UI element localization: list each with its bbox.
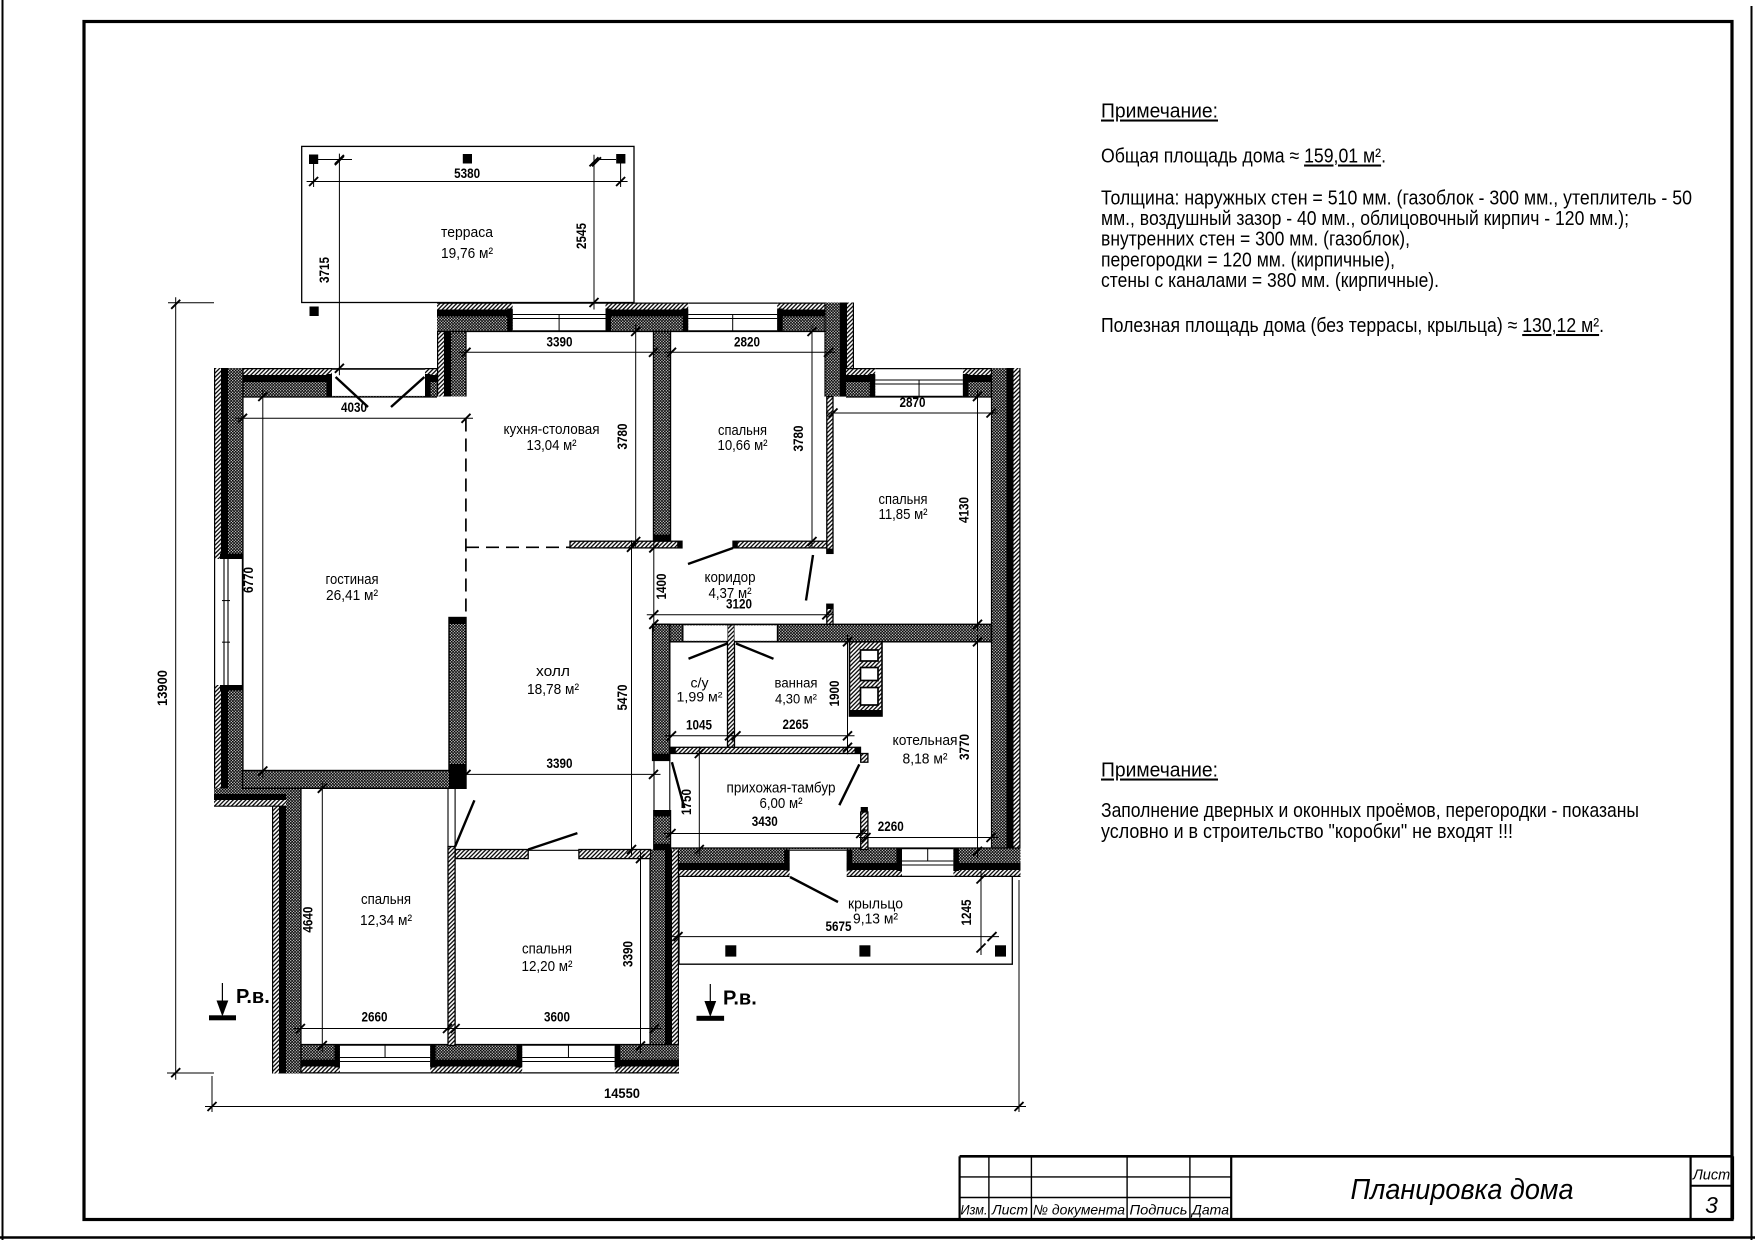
svg-text:котельная: котельная: [893, 732, 958, 749]
svg-text:19,76 м²: 19,76 м²: [441, 245, 493, 262]
svg-text:2265: 2265: [783, 717, 809, 732]
svg-text:4640: 4640: [301, 907, 316, 933]
svg-text:3390: 3390: [547, 756, 573, 771]
svg-text:гостиная: гостиная: [326, 571, 379, 588]
svg-text:1750: 1750: [679, 789, 694, 815]
svg-text:Р.в.: Р.в.: [723, 988, 757, 1010]
svg-text:прихожая-тамбур: прихожая-тамбур: [727, 780, 836, 797]
svg-text:внутренних стен = 300 мм. (газ: внутренних стен = 300 мм. (газоблок),: [1101, 228, 1410, 251]
svg-text:Толщина: наружных стен = 510 м: Толщина: наружных стен = 510 мм. (газобл…: [1101, 187, 1692, 210]
svg-text:4130: 4130: [957, 497, 972, 523]
svg-text:Общая площадь дома ≈ 159,01 м²: Общая площадь дома ≈ 159,01 м².: [1101, 145, 1386, 168]
svg-text:стены с каналами = 380 мм. (ки: стены с каналами = 380 мм. (кирпичные).: [1101, 269, 1439, 292]
svg-text:кухня-столовая: кухня-столовая: [504, 421, 600, 438]
svg-text:№ документа: № документа: [1033, 1202, 1125, 1218]
svg-text:коридор: коридор: [705, 569, 756, 586]
svg-text:6,00 м²: 6,00 м²: [760, 795, 803, 812]
svg-text:условно и в строительство "кор: условно и в строительство "коробки" не в…: [1101, 820, 1513, 843]
svg-text:6770: 6770: [241, 567, 256, 593]
svg-text:3715: 3715: [317, 257, 332, 283]
svg-text:Примечание:: Примечание:: [1101, 759, 1218, 782]
svg-text:3390: 3390: [547, 335, 573, 350]
svg-text:2660: 2660: [362, 1010, 388, 1025]
svg-text:Лист: Лист: [1692, 1168, 1730, 1184]
svg-text:3: 3: [1705, 1192, 1718, 1218]
svg-text:5470: 5470: [615, 685, 630, 711]
svg-text:9,13 м²: 9,13 м²: [853, 911, 898, 928]
svg-text:2260: 2260: [878, 819, 904, 834]
svg-text:1,99 м²: 1,99 м²: [677, 690, 724, 705]
svg-text:3600: 3600: [544, 1010, 570, 1025]
svg-text:перегородки = 120 мм. (кирпичн: перегородки = 120 мм. (кирпичные),: [1101, 248, 1395, 271]
svg-text:Примечание:: Примечание:: [1101, 100, 1218, 123]
svg-text:спальня: спальня: [361, 891, 411, 908]
svg-text:13900: 13900: [155, 670, 170, 706]
svg-text:Полезная площадь дома (без тер: Полезная площадь дома (без террасы, крыл…: [1101, 314, 1604, 337]
svg-text:Р.в.: Р.в.: [236, 986, 270, 1008]
svg-text:12,34 м²: 12,34 м²: [360, 912, 412, 929]
svg-text:терраса: терраса: [441, 224, 494, 241]
svg-text:Изм.: Изм.: [961, 1202, 988, 1218]
svg-text:2545: 2545: [574, 223, 589, 249]
svg-text:18,78 м²: 18,78 м²: [527, 681, 579, 698]
svg-text:11,85 м²: 11,85 м²: [879, 506, 928, 523]
svg-text:3780: 3780: [791, 426, 806, 452]
svg-text:4,30 м²: 4,30 м²: [775, 692, 817, 707]
svg-text:3430: 3430: [752, 814, 778, 829]
svg-text:1400: 1400: [654, 574, 669, 600]
svg-text:Заполнение дверных и оконных п: Заполнение дверных и оконных проёмов, пе…: [1101, 799, 1639, 822]
svg-text:Подпись: Подпись: [1130, 1202, 1188, 1218]
svg-text:5675: 5675: [826, 919, 852, 934]
svg-text:с/у: с/у: [691, 676, 709, 691]
svg-text:2820: 2820: [734, 335, 760, 350]
svg-text:3780: 3780: [615, 424, 630, 450]
svg-text:Лист: Лист: [991, 1202, 1028, 1218]
svg-text:1900: 1900: [827, 681, 842, 707]
svg-text:Дата: Дата: [1190, 1202, 1229, 1218]
svg-text:14550: 14550: [604, 1086, 640, 1101]
svg-text:1045: 1045: [686, 718, 712, 733]
svg-text:12,20 м²: 12,20 м²: [522, 958, 573, 975]
svg-text:2870: 2870: [900, 395, 926, 410]
svg-text:13,04 м²: 13,04 м²: [527, 437, 577, 454]
svg-text:3120: 3120: [726, 597, 752, 612]
svg-text:5380: 5380: [454, 166, 480, 181]
svg-text:3770: 3770: [957, 734, 972, 760]
svg-text:4030: 4030: [341, 400, 367, 415]
svg-text:8,18 м²: 8,18 м²: [903, 751, 948, 768]
svg-text:10,66 м²: 10,66 м²: [718, 437, 768, 454]
svg-text:26,41 м²: 26,41 м²: [326, 587, 378, 604]
svg-text:спальня: спальня: [522, 941, 572, 958]
svg-text:ванная: ванная: [775, 676, 818, 691]
svg-text:мм., воздушный зазор - 40 мм.,: мм., воздушный зазор - 40 мм., облицовоч…: [1101, 207, 1629, 230]
svg-text:Планировка дома: Планировка дома: [1351, 1174, 1574, 1206]
svg-text:1245: 1245: [959, 899, 974, 925]
svg-text:3390: 3390: [621, 941, 636, 967]
svg-text:холл: холл: [536, 663, 570, 680]
